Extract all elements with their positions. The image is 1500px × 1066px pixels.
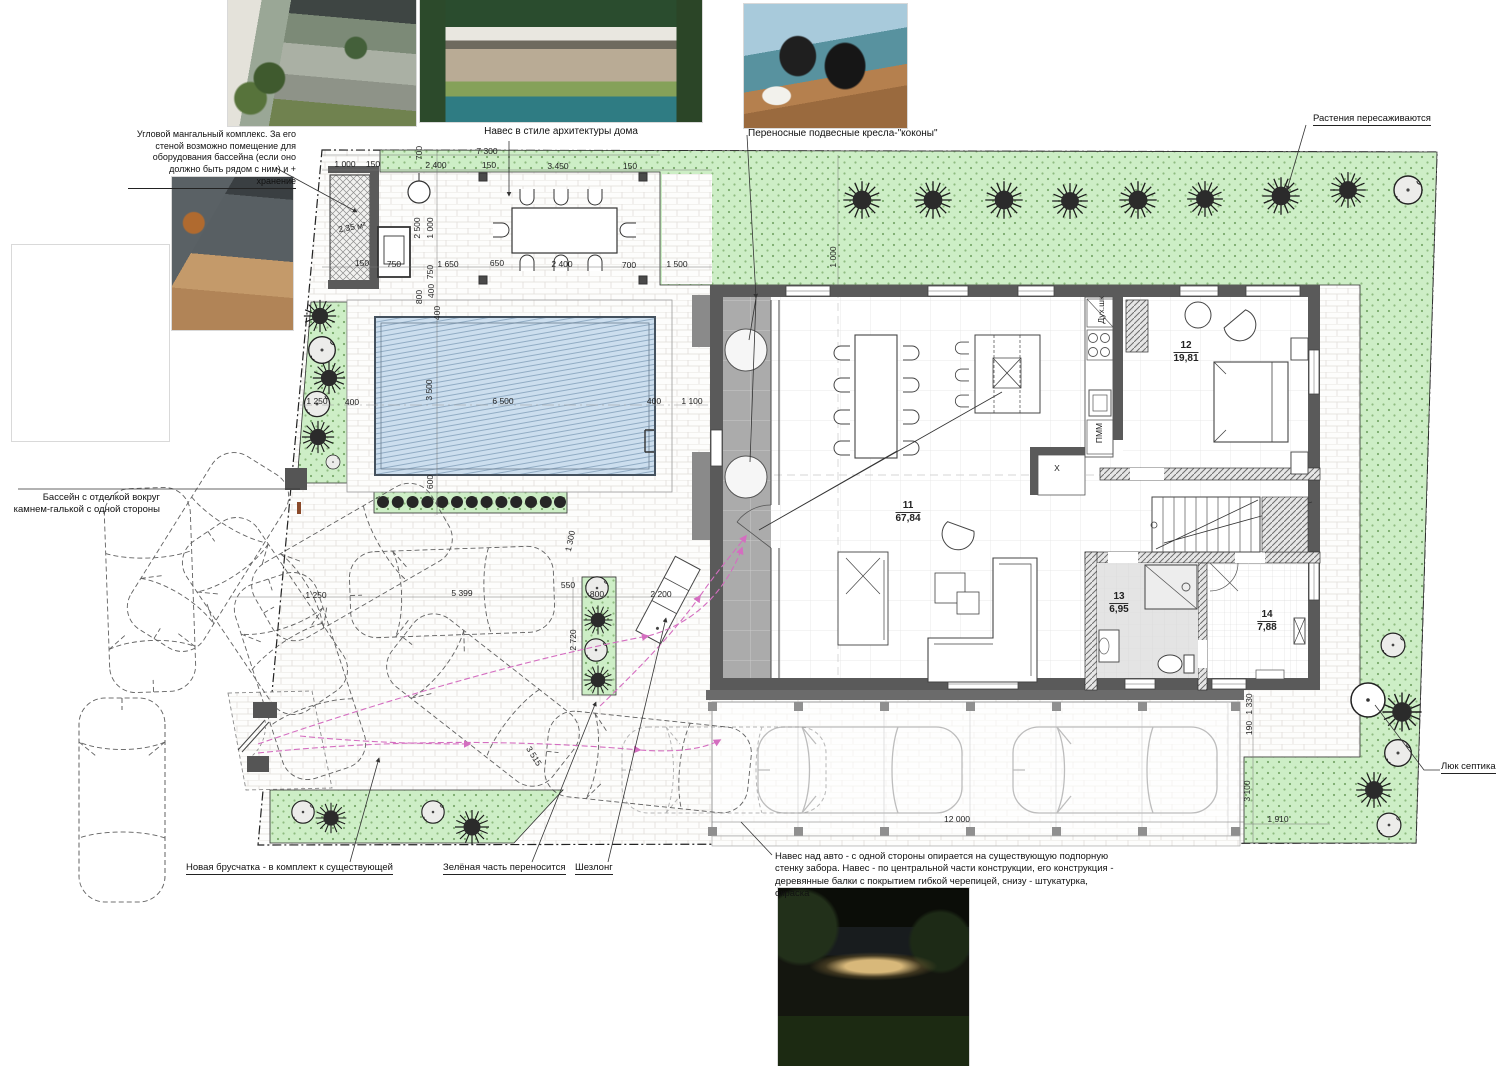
note-pool-finish: Бассейн с отделкой вокруг камнем-галькой…: [8, 492, 160, 517]
reference-photo-outdoor-kitchen: [172, 177, 293, 330]
carport: [622, 690, 1244, 846]
note-bbq-complex: Угловой мангальный комплекс. За его стен…: [128, 129, 296, 189]
caption-pavilion: Навес в стиле архитектуры дома: [430, 126, 692, 137]
tv-unit: [838, 552, 888, 645]
cocoon-chair-spot: [725, 456, 767, 498]
street-car: [79, 698, 165, 902]
site-plan-page: Угловой мангальный комплекс. За его стен…: [0, 0, 1500, 1066]
house: [692, 285, 1320, 690]
reference-photo-pavilion: [420, 0, 702, 122]
note-septic-hatch: Люк септика: [1441, 761, 1496, 773]
note-plants-transplanted: Растения пересаживаются: [1313, 113, 1431, 125]
reference-photo-pool: [12, 245, 169, 441]
caption-cocoon-chairs: Переносные подвесные кресла-"коконы": [748, 128, 938, 139]
stairs: [1151, 497, 1312, 552]
note-sun-lounger: Шезлонг: [575, 862, 613, 874]
note-new-paving: Новая брусчатка - в комплект к существую…: [186, 862, 393, 874]
bed: [1214, 362, 1288, 442]
bathroom: [1097, 563, 1198, 678]
walkway-notch: [662, 174, 712, 284]
kitchen: [1085, 297, 1113, 457]
reference-photo-cocoon-chairs: [744, 4, 907, 128]
reference-photo-night-pergola: [778, 888, 969, 1066]
pool: [347, 300, 672, 492]
note-green-moved: Зелёная часть переносится: [443, 862, 566, 874]
reference-photo-garden: [228, 0, 416, 126]
toilet: [1158, 655, 1182, 673]
cocoon-chair-spot: [725, 329, 767, 371]
wardrobe: [1126, 300, 1148, 352]
kitchen-island: [955, 335, 1040, 413]
note-carport: Навес над авто - с одной стороны опирает…: [775, 851, 1123, 900]
room-14: [1207, 563, 1308, 679]
